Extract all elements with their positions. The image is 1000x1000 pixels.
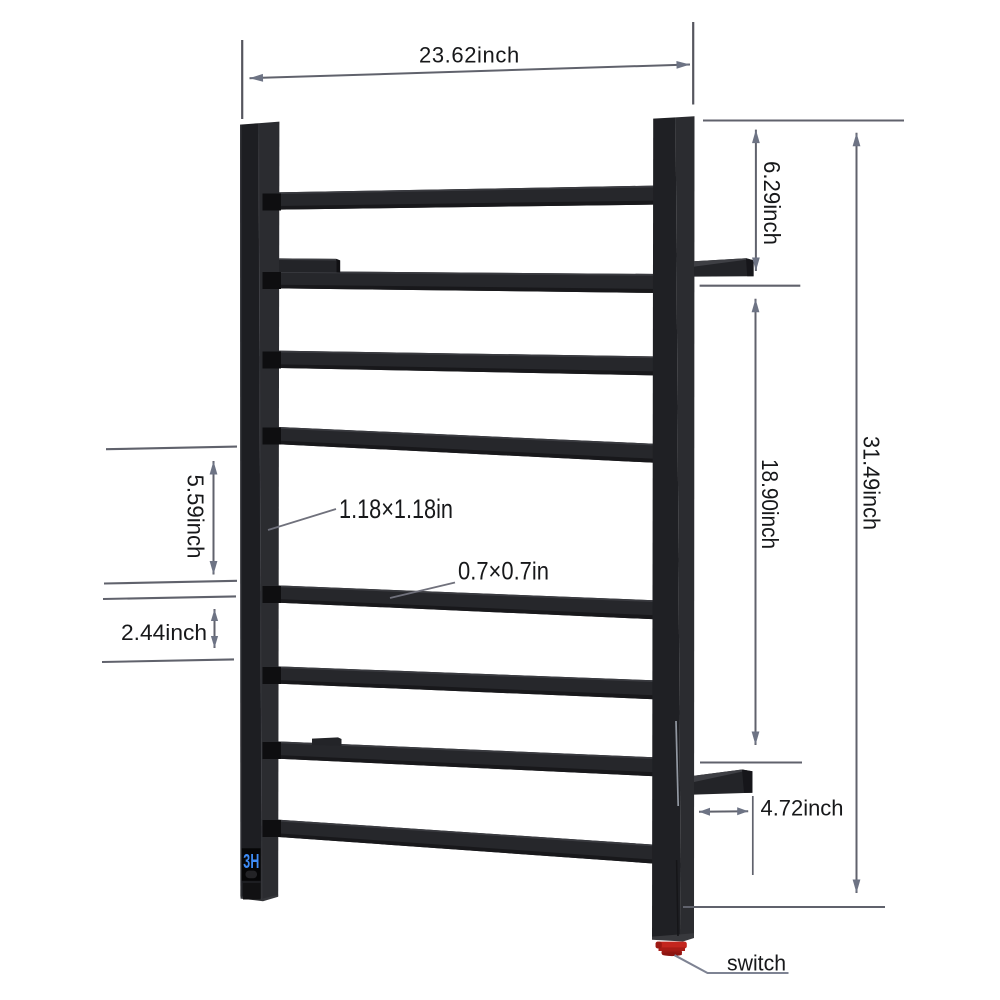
svg-text:18.90inch: 18.90inch [757,459,783,549]
svg-text:2.44inch: 2.44inch [121,620,207,645]
svg-text:0.7×0.7in: 0.7×0.7in [458,558,549,586]
svg-text:3H: 3H [243,850,259,873]
svg-text:switch: switch [727,951,786,976]
svg-text:6.29inch: 6.29inch [759,161,785,245]
svg-text:23.62inch: 23.62inch [419,43,520,68]
svg-text:5.59inch: 5.59inch [183,475,209,559]
svg-text:4.72inch: 4.72inch [761,796,844,821]
svg-text:31.49inch: 31.49inch [859,436,885,530]
svg-text:1.18×1.18in: 1.18×1.18in [339,494,453,524]
